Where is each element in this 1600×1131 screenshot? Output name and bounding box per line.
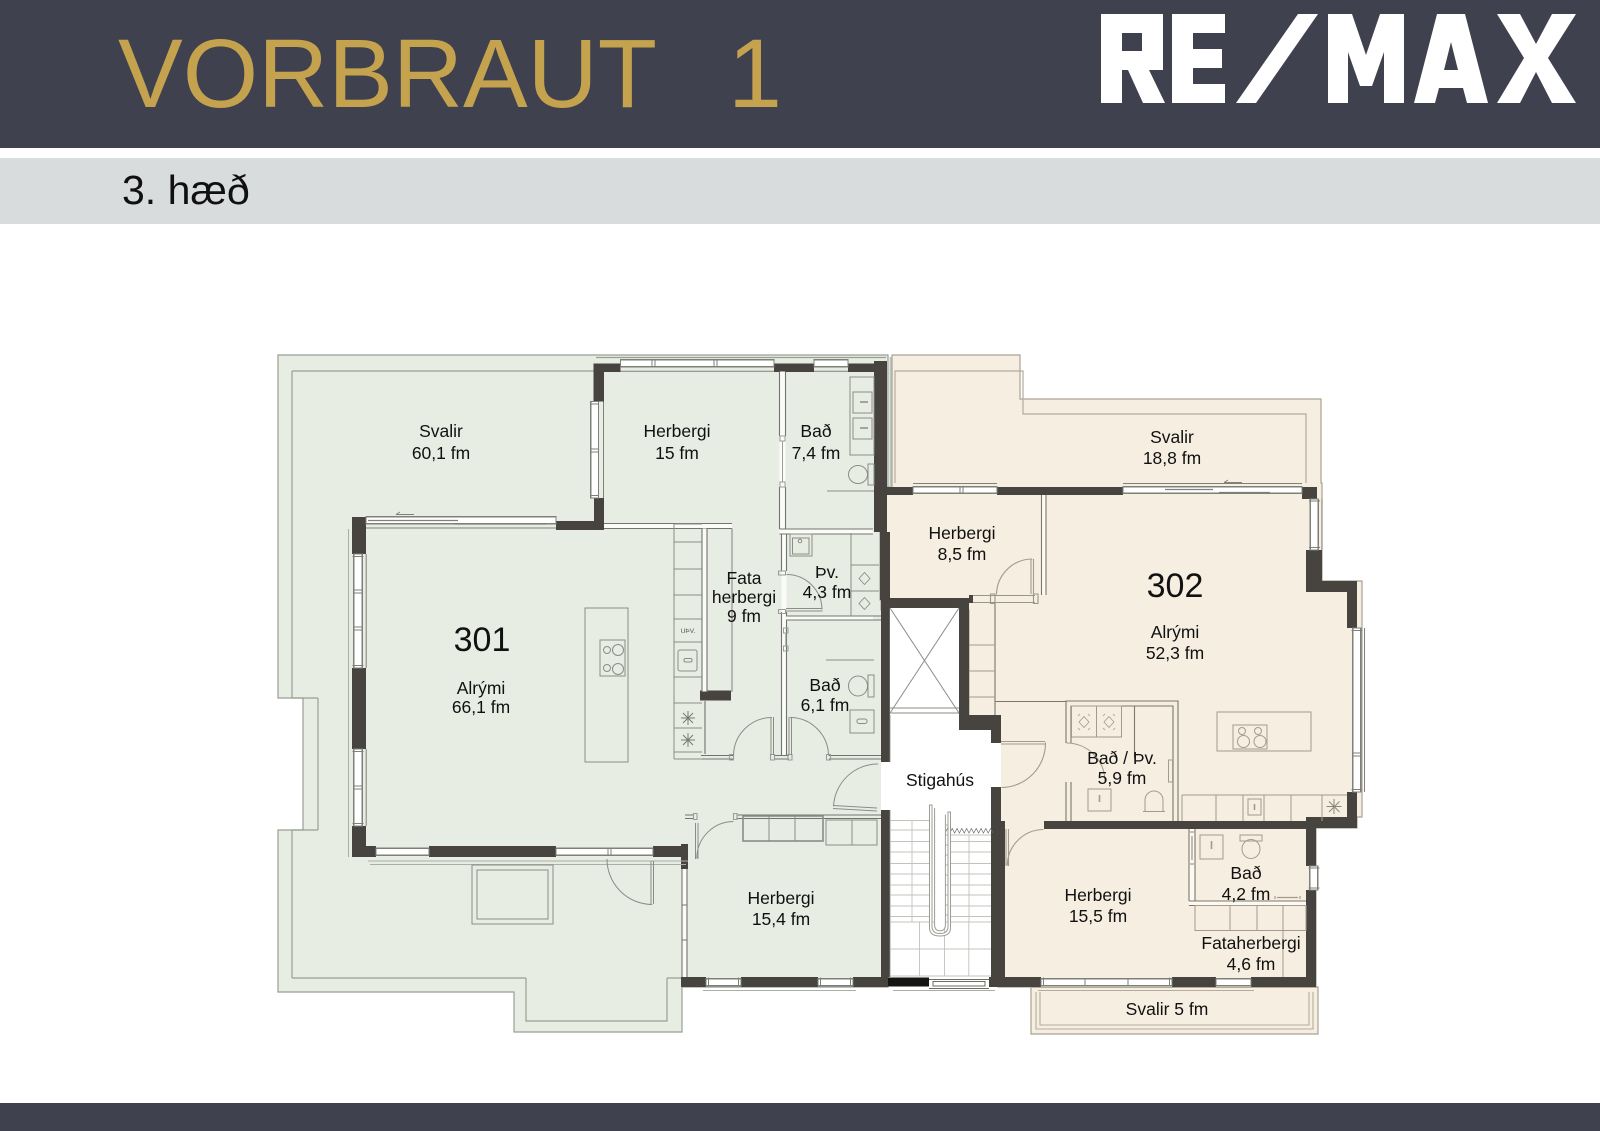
svg-text:Herbergi: Herbergi xyxy=(928,523,995,543)
svg-text:5,9 fm: 5,9 fm xyxy=(1098,768,1147,788)
svg-text:4,6 fm: 4,6 fm xyxy=(1227,954,1276,974)
svg-text:6,1 fm: 6,1 fm xyxy=(801,695,850,715)
svg-text:Svalir: Svalir xyxy=(1150,427,1194,447)
svg-text:Bað: Bað xyxy=(800,421,831,441)
svg-text:UÞV.: UÞV. xyxy=(681,628,696,635)
svg-text:4,2 fm: 4,2 fm xyxy=(1222,884,1271,904)
svg-text:15,4 fm: 15,4 fm xyxy=(752,909,810,929)
svg-text:15,5 fm: 15,5 fm xyxy=(1069,906,1127,926)
svg-text:302: 302 xyxy=(1147,567,1204,605)
svg-text:8,5 fm: 8,5 fm xyxy=(938,544,987,564)
svg-text:Herbergi: Herbergi xyxy=(747,888,814,908)
svg-text:Svalir: Svalir xyxy=(419,421,463,441)
svg-text:301: 301 xyxy=(454,621,511,659)
svg-text:Herbergi: Herbergi xyxy=(1064,885,1131,905)
svg-text:52,3 fm: 52,3 fm xyxy=(1146,643,1204,663)
svg-text:7,4 fm: 7,4 fm xyxy=(792,443,841,463)
svg-text:Bað / Þv.: Bað / Þv. xyxy=(1087,748,1157,768)
svg-text:Bað: Bað xyxy=(1230,863,1261,883)
svg-text:Svalir 5 fm: Svalir 5 fm xyxy=(1126,999,1209,1019)
svg-text:Alrými: Alrými xyxy=(1151,622,1200,642)
svg-text:Fata: Fata xyxy=(726,568,761,588)
svg-text:4,3 fm: 4,3 fm xyxy=(803,582,852,602)
svg-text:18,8 fm: 18,8 fm xyxy=(1143,448,1201,468)
svg-text:15 fm: 15 fm xyxy=(655,443,699,463)
svg-text:9 fm: 9 fm xyxy=(727,606,761,626)
svg-text:Fataherbergi: Fataherbergi xyxy=(1201,933,1300,953)
svg-text:60,1 fm: 60,1 fm xyxy=(412,443,470,463)
svg-text:Alrými: Alrými xyxy=(457,678,506,698)
svg-text:66,1 fm: 66,1 fm xyxy=(452,697,510,717)
svg-text:Herbergi: Herbergi xyxy=(643,421,710,441)
svg-text:Stigahús: Stigahús xyxy=(906,770,974,790)
svg-text:herbergi: herbergi xyxy=(712,587,776,607)
svg-text:Þv.: Þv. xyxy=(815,562,839,582)
svg-text:Bað: Bað xyxy=(809,675,840,695)
